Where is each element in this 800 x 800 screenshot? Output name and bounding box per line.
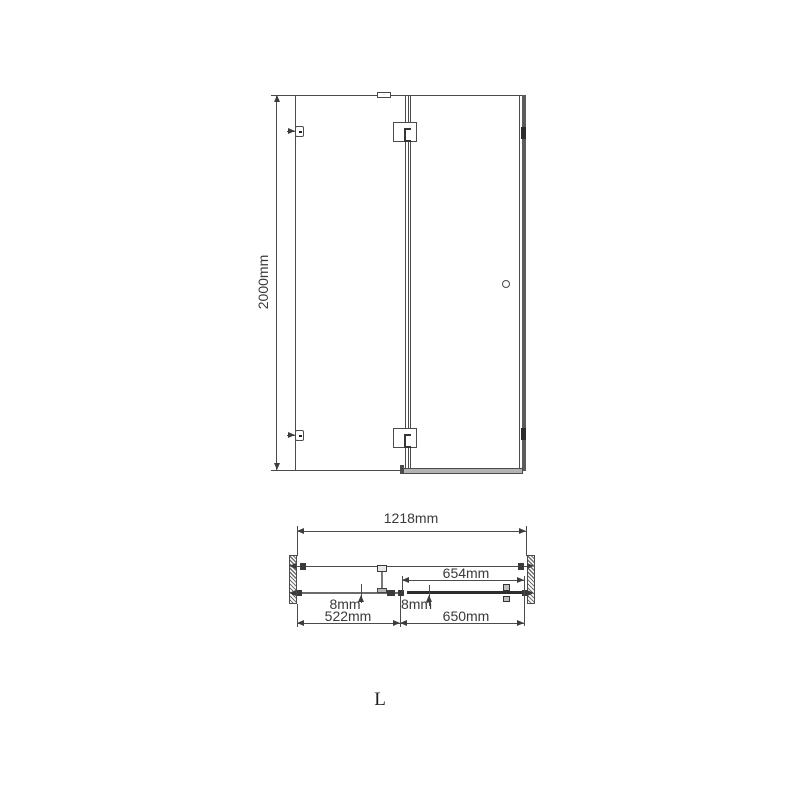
plan-door-thickness-label: 8mm	[401, 596, 432, 612]
front-top-edge	[271, 95, 526, 96]
technical-drawing-canvas: 2000mm	[0, 0, 800, 800]
door-handle-knob	[502, 280, 510, 288]
glass-arrow-left	[289, 590, 296, 596]
glass-wall-clamp-left	[297, 590, 302, 596]
door-glass-plan	[407, 591, 522, 594]
handle-knob-plan-top	[503, 584, 510, 591]
ext-line-door-right	[524, 576, 525, 626]
height-dim-arrow-bottom	[274, 463, 280, 470]
support-bar-wall-mount-right	[518, 563, 524, 571]
pivot-hinge-plate-left	[387, 590, 396, 596]
door-width-arrow-left	[400, 620, 407, 626]
glass-arrow-right	[527, 590, 534, 596]
hinge-knuckle-icon	[404, 434, 411, 448]
plan-door-width-label: 650mm	[443, 608, 490, 624]
plan-overall-width-label: 1218mm	[384, 510, 438, 526]
pivot-width-arrow-right	[517, 577, 524, 583]
support-bar-clamp	[377, 92, 391, 99]
orientation-letter: L	[374, 689, 386, 711]
hinge-axis-line	[405, 95, 406, 470]
bracket-arrow-top	[288, 128, 295, 134]
support-bar-arrow-right	[527, 563, 534, 569]
hinge-knuckle-icon	[404, 128, 411, 142]
plan-pivot-width-label: 654mm	[443, 565, 490, 581]
door-right-edge	[519, 95, 520, 470]
hinge-axis-line	[410, 95, 411, 470]
bracket-arrow-bottom	[288, 432, 295, 438]
height-dimension-line	[276, 95, 277, 470]
pivot-width-arrow-left	[402, 577, 409, 583]
ext-line-right	[526, 526, 527, 556]
bar-clamp-base	[377, 588, 387, 593]
handle-knob-plan-bottom	[503, 596, 510, 603]
height-dim-arrow-top	[274, 95, 280, 102]
door-hinge-top	[393, 122, 417, 142]
threshold-end-cap	[400, 465, 404, 474]
overall-width-arrow-right	[519, 528, 526, 534]
fixed-width-arrow-right	[393, 620, 400, 626]
right-wall-profile	[522, 95, 527, 471]
door-width-arrow-right	[517, 620, 524, 626]
fixed-width-arrow-left	[297, 620, 304, 626]
fixed-glass-left-edge	[295, 95, 296, 470]
door-hinge-bottom	[393, 428, 417, 448]
wall-profile-bracket-bottom	[521, 428, 526, 440]
support-bar-wall-mount-left	[300, 563, 306, 571]
overall-width-dim-line	[297, 531, 526, 532]
support-bar-line	[297, 566, 527, 567]
overall-width-arrow-left	[297, 528, 304, 534]
bracket-pin-bottom	[299, 435, 302, 438]
bracket-pin-top	[299, 131, 302, 134]
hinge-axis-line	[408, 95, 409, 470]
bar-clamp-stem	[381, 572, 384, 589]
plan-fixed-width-label: 522mm	[325, 608, 372, 624]
threshold-bar	[401, 468, 523, 474]
support-bar-arrow-left	[289, 563, 296, 569]
front-view-height-label: 2000mm	[255, 255, 271, 309]
wall-profile-bracket-top	[521, 127, 526, 139]
